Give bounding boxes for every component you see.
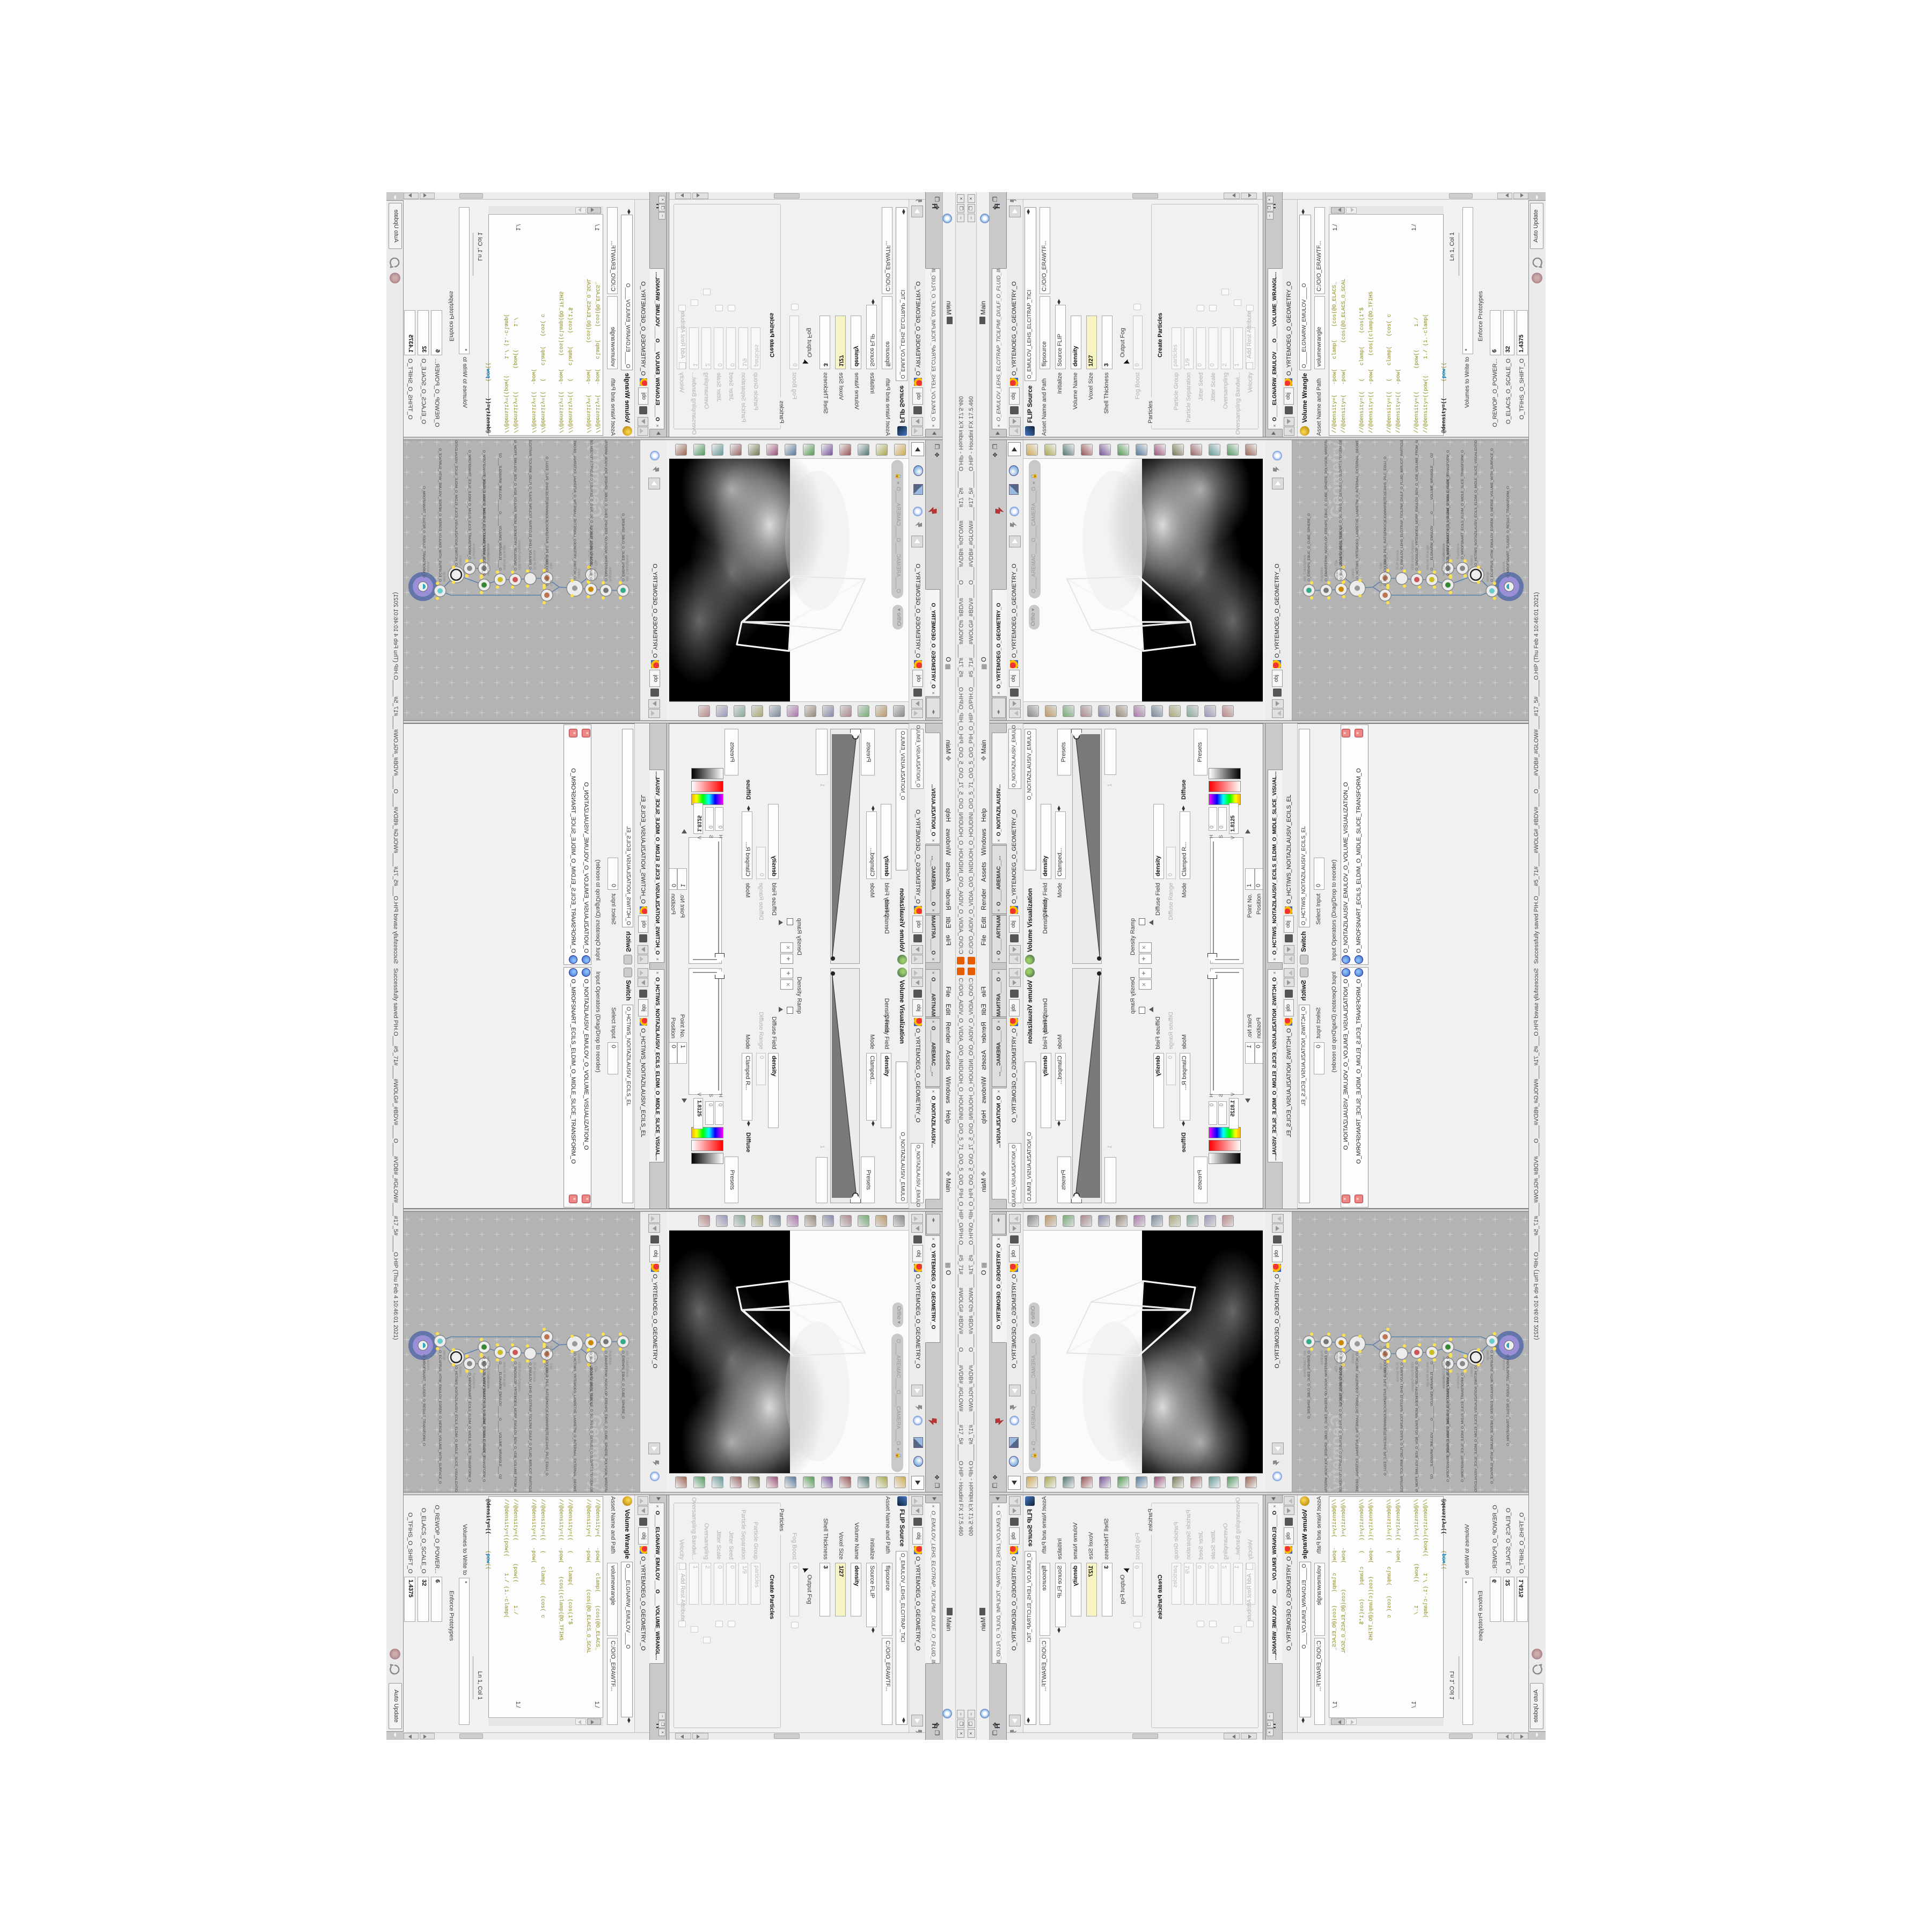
- svg-text:Clip: Clip: [549, 1346, 553, 1352]
- svg-text:O_EREHPS_EBUC_O_CUBE_SPHERE_O: O_EREHPS_EBUC_O_CUBE_SPHERE_O: [1307, 1351, 1311, 1418]
- svg-text:VDB from Polygons: VDB from Polygons: [1411, 1362, 1415, 1392]
- svg-text:O_PILC_O_CLIP_O: O_PILC_O_CLIP_O: [1384, 554, 1387, 586]
- svg-text:O_MROFSNART_TLUSER_O_RESULT_TR: O_MROFSNART_TLUSER_O_RESULT_TRANSFORM_O: [422, 1355, 426, 1446]
- svg-text:O_SNOGILOP_YRTEMOEG_MORF_EMULO: O_SNOGILOP_YRTEMOEG_MORF_EMULOV_BDV_O_VD…: [513, 1362, 517, 1492]
- svg-text:O____ELGNARW_EMULOV______O____: O____ELGNARW_EMULOV______O______VOLUME_W…: [498, 1362, 502, 1479]
- svg-text:Switch: Switch: [1470, 1366, 1474, 1377]
- svg-text:O_EREHPS_EBUC_O_CUBE_SPHERE_O: O_EREHPS_EBUC_O_CUBE_SPHERE_O: [621, 1351, 625, 1418]
- svg-text:Boolean: Boolean: [593, 1352, 597, 1365]
- svg-text:Switch: Switch: [458, 555, 462, 566]
- svg-text:Transform: Transform: [1457, 544, 1460, 559]
- svg-text:Switch: Switch: [1470, 555, 1474, 566]
- svg-text:O_PILC_O_CLIP_O: O_PILC_O_CLIP_O: [545, 554, 548, 586]
- svg-text:JBO.MD3.PETS.TEPCILS_O_5O.JNEG: JBO.MD3.PETS.TEPCILS_O_5O.JNEG_O_GENUS3_…: [1339, 1366, 1343, 1492]
- svg-text:Merge: Merge: [442, 1350, 446, 1360]
- svg-text:O_MROFSNART_ECILS_ELDIM_O_MIDL: O_MROFSNART_ECILS_ELDIM_O_MIDLE_SLICE_TR…: [482, 1373, 486, 1482]
- svg-text:O_HCTIWS_NOITAZILAUSIV_ECILS_E: O_HCTIWS_NOITAZILAUSIV_ECILS_ELDIM_O_MID…: [454, 440, 458, 566]
- svg-text:O_MROFSNART_ECILS_ELDIM_O_MIDL: O_MROFSNART_ECILS_ELDIM_O_MIDLE_SLICE_TR…: [467, 1373, 471, 1482]
- svg-text:VDB from Polygons: VDB from Polygons: [1411, 540, 1415, 570]
- svg-text:O____ELGNARW_EMULOV______O____: O____ELGNARW_EMULOV______O______VOLUME_W…: [1430, 1362, 1434, 1479]
- svg-text:O_EMARFERIW_NOGYLOP_EREHPS_EBU: O_EMARFERIW_NOGYLOP_EREHPS_EBUC_O_CUBE_S…: [1324, 1351, 1328, 1492]
- svg-text:File: File: [1335, 1366, 1338, 1372]
- svg-text:PolyWire: PolyWire: [608, 1351, 612, 1365]
- svg-text:Volume Wrangle: Volume Wrangle: [1426, 545, 1430, 570]
- svg-text:O_EMULOV_LEHS_ELCITRAP_TICILPM: O_EMULOV_LEHS_ELCITRAP_TICILPMI_DIULF_O_…: [528, 440, 532, 569]
- svg-text:Merge: Merge: [1486, 572, 1490, 582]
- svg-text:Clip: Clip: [1379, 1346, 1383, 1352]
- svg-text:O____ELGNARW_EMULOV______O____: O____ELGNARW_EMULOV______O______VOLUME_W…: [498, 453, 502, 570]
- svg-text:Clip: Clip: [549, 562, 553, 569]
- svg-text:O_SNOGILOP_YRTEMOEG_MORF_EMULO: O_SNOGILOP_YRTEMOEG_MORF_EMULOV_BDV_O_VD…: [513, 440, 517, 570]
- svg-text:FLIP Source: FLIP Source: [532, 1363, 536, 1382]
- svg-text:Geometry: Geometry: [1328, 1415, 1345, 1490]
- svg-text:Transform: Transform: [1457, 1373, 1460, 1388]
- svg-text:O_EMARFERIW_NOGYLOP_EREHPS_EBU: O_EMARFERIW_NOGYLOP_EREHPS_EBUC_O_CUBE_S…: [1324, 440, 1328, 581]
- svg-text:Clip: Clip: [1379, 1363, 1383, 1370]
- svg-text:Volume Wrangle: Volume Wrangle: [1426, 1362, 1430, 1387]
- svg-text:O_ECAFRUS_HTIW_EMULOV_EGREM_O_: O_ECAFRUS_HTIW_EMULOV_EGREM_O_MERGE_VOLU…: [1490, 448, 1494, 582]
- svg-text:O_MROFSNART_ECILS_ELDIM_O_MIDL: O_MROFSNART_ECILS_ELDIM_O_MIDLE_SLICE_TR…: [482, 450, 486, 559]
- svg-text:Transform: Transform: [486, 1373, 490, 1388]
- svg-text:PolyWire: PolyWire: [608, 567, 612, 581]
- svg-text:am_CubeSphere: am_CubeSphere: [625, 554, 629, 581]
- svg-text:O_EGUJ_PILC_RATS(PMOC)EJO(MMIR: O_EGUJ_PILC_RATS(PMOC)EJO(MMIRB)TEJ(EJAH…: [1384, 1363, 1387, 1475]
- svg-text:Clip: Clip: [549, 1363, 553, 1370]
- svg-text:File: File: [594, 1366, 597, 1372]
- svg-text:File: File: [594, 560, 597, 566]
- svg-text:Transform: Transform: [426, 1355, 430, 1370]
- svg-text:O_EMARFERIW_NOGYLOP_EREHPS_EBU: O_EMARFERIW_NOGYLOP_EREHPS_EBUC_O_CUBE_S…: [604, 1351, 608, 1492]
- svg-text:Switch: Switch: [1351, 568, 1355, 579]
- svg-text:O____ELGNARW_EMULOV______O____: O____ELGNARW_EMULOV______O______VOLUME_W…: [1430, 453, 1434, 570]
- svg-text:Geometry: Geometry: [1328, 442, 1345, 517]
- svg-text:O_MROFSNART_ECILS_ELDIM_O_MIDL: O_MROFSNART_ECILS_ELDIM_O_MIDLE_SLICE_TR…: [467, 450, 471, 559]
- svg-text:VDB from Polygons: VDB from Polygons: [517, 540, 521, 570]
- svg-text:O_MROFSNART_TLUSER_O_RESULT_TR: O_MROFSNART_TLUSER_O_RESULT_TRANSFORM_O: [1506, 1355, 1510, 1446]
- svg-text:PolyWire: PolyWire: [1320, 1351, 1324, 1365]
- svg-text:File: File: [1335, 560, 1338, 566]
- svg-text:O_EGUJ_PILC_RATS(PMOC)EJO(MMIR: O_EGUJ_PILC_RATS(PMOC)EJO(MMIRB)TEJ(EJAH…: [545, 1363, 548, 1475]
- svg-text:O_EMULOV_LEHS_ELCITRAP_TICILPM: O_EMULOV_LEHS_ELCITRAP_TICILPMI_DIULF_O_…: [1400, 440, 1404, 569]
- svg-text:Transform: Transform: [486, 544, 490, 559]
- svg-text:JBO.MD3.PETS.TEPCILS_O_5O.JNEG: JBO.MD3.PETS.TEPCILS_O_5O.JNEG_O_GENUS3_…: [589, 440, 593, 566]
- svg-text:Transform: Transform: [472, 1373, 475, 1388]
- svg-text:Switch: Switch: [577, 1353, 581, 1364]
- svg-text:JBO.MD3.PETS.TEPCILS_O_5O.JNEG: JBO.MD3.PETS.TEPCILS_O_5O.JNEG_O_GENUS3_…: [1339, 440, 1343, 566]
- svg-text:O_HCTIWS_YRTEMOEG_LANRETXE_LAN: O_HCTIWS_YRTEMOEG_LANRETXE_LANRETNI_O_IN…: [573, 1353, 576, 1492]
- svg-text:O_SNOGILOP_YRTEMOEG_MORF_EMULO: O_SNOGILOP_YRTEMOEG_MORF_EMULOV_BDV_O_VD…: [1415, 440, 1419, 570]
- svg-text:O_EREHPS_EBUC_O_CUBE_SPHERE_O: O_EREHPS_EBUC_O_CUBE_SPHERE_O: [621, 514, 625, 581]
- svg-text:O_HCTIWS_NOITAZILAUSIV_ECILS_E: O_HCTIWS_NOITAZILAUSIV_ECILS_ELDIM_O_MID…: [1474, 1366, 1478, 1492]
- svg-text:O_EGUJ_PILC_RATS(PMOC)EJO(MMIR: O_EGUJ_PILC_RATS(PMOC)EJO(MMIRB)TEJ(EJAH…: [545, 457, 548, 569]
- svg-text:Switch: Switch: [1351, 1353, 1355, 1364]
- svg-text:O_MROFSNART_TLUSER_O_RESULT_TR: O_MROFSNART_TLUSER_O_RESULT_TRANSFORM_O: [1506, 486, 1510, 577]
- svg-text:JBO.MD3.PETS.TEPCILS_O_5O.JNEG: JBO.MD3.PETS.TEPCILS_O_5O.JNEG_O_GENUS3_…: [589, 1366, 593, 1492]
- svg-text:am_CubeSphere: am_CubeSphere: [1303, 554, 1307, 581]
- svg-text:Transform: Transform: [472, 544, 475, 559]
- svg-text:Volume Wrangle: Volume Wrangle: [502, 1362, 506, 1387]
- svg-text:PolyWire: PolyWire: [1320, 567, 1324, 581]
- svg-text:O_ECAFRUS_HTIW_EMULOV_EGREM_O_: O_ECAFRUS_HTIW_EMULOV_EGREM_O_MERGE_VOLU…: [1490, 1350, 1494, 1484]
- svg-text:O_HCTIWS_YRTEMOEG_LANRETXE_LAN: O_HCTIWS_YRTEMOEG_LANRETXE_LANRETNI_O_IN…: [1356, 1353, 1359, 1492]
- svg-text:O_MROFSNART_ECILS_ELDIM_O_MIDL: O_MROFSNART_ECILS_ELDIM_O_MIDLE_SLICE_TR…: [1446, 1373, 1450, 1482]
- svg-text:am_CubeSphere: am_CubeSphere: [1303, 1351, 1307, 1378]
- svg-text:O_HCTIWS_NOITAZILAUSIV_ECILS_E: O_HCTIWS_NOITAZILAUSIV_ECILS_ELDIM_O_MID…: [454, 1366, 458, 1492]
- svg-text:O_HCTIWS_NOITAZILAUSIV_ECILS_E: O_HCTIWS_NOITAZILAUSIV_ECILS_ELDIM_O_MID…: [1474, 440, 1478, 566]
- svg-text:VDB from Polygons: VDB from Polygons: [517, 1362, 521, 1392]
- svg-text:am_CubeSphere: am_CubeSphere: [625, 1351, 629, 1378]
- svg-text:Boolean: Boolean: [1335, 567, 1339, 580]
- svg-text:Merge: Merge: [442, 572, 446, 582]
- svg-text:Transform: Transform: [1502, 1355, 1506, 1370]
- svg-text:FLIP Source: FLIP Source: [1396, 1363, 1400, 1382]
- svg-text:Transform: Transform: [1442, 544, 1446, 559]
- svg-text:O_EMARFERIW_NOGYLOP_EREHPS_EBU: O_EMARFERIW_NOGYLOP_EREHPS_EBUC_O_CUBE_S…: [604, 440, 608, 581]
- svg-text:Clip: Clip: [1379, 580, 1383, 586]
- svg-text:Switch: Switch: [458, 1366, 462, 1377]
- svg-text:O_MROFSNART_ECILS_ELDIM_O_MIDL: O_MROFSNART_ECILS_ELDIM_O_MIDLE_SLICE_TR…: [1461, 1373, 1465, 1482]
- svg-text:O_PILC_O_CLIP_O: O_PILC_O_CLIP_O: [545, 1346, 548, 1378]
- svg-text:Transform: Transform: [1502, 562, 1506, 577]
- svg-text:Boolean: Boolean: [1335, 1352, 1339, 1365]
- svg-text:O_ECAFRUS_HTIW_EMULOV_EGREM_O_: O_ECAFRUS_HTIW_EMULOV_EGREM_O_MERGE_VOLU…: [438, 1350, 442, 1484]
- svg-text:O_EGUJ_PILC_RATS(PMOC)EJO(MMIR: O_EGUJ_PILC_RATS(PMOC)EJO(MMIRB)TEJ(EJAH…: [1384, 457, 1387, 569]
- svg-text:Switch: Switch: [577, 568, 581, 579]
- svg-text:Transform: Transform: [1442, 1373, 1446, 1388]
- svg-text:Clip: Clip: [1379, 562, 1383, 569]
- svg-text:Volume Wrangle: Volume Wrangle: [502, 545, 506, 570]
- svg-text:O_EMULOV_LEHS_ELCITRAP_TICILPM: O_EMULOV_LEHS_ELCITRAP_TICILPMI_DIULF_O_…: [528, 1363, 532, 1492]
- svg-text:FLIP Source: FLIP Source: [532, 550, 536, 569]
- svg-text:Clip: Clip: [549, 580, 553, 586]
- svg-text:O_PILC_O_CLIP_O: O_PILC_O_CLIP_O: [1384, 1346, 1387, 1378]
- svg-text:Boolean: Boolean: [593, 567, 597, 580]
- svg-text:Merge: Merge: [1486, 1350, 1490, 1360]
- svg-text:O_MROFSNART_TLUSER_O_RESULT_TR: O_MROFSNART_TLUSER_O_RESULT_TRANSFORM_O: [422, 486, 426, 577]
- svg-text:O_MROFSNART_ECILS_ELDIM_O_MIDL: O_MROFSNART_ECILS_ELDIM_O_MIDLE_SLICE_TR…: [1461, 450, 1465, 559]
- svg-text:Transform: Transform: [426, 562, 430, 577]
- svg-text:O_MROFSNART_ECILS_ELDIM_O_MIDL: O_MROFSNART_ECILS_ELDIM_O_MIDLE_SLICE_TR…: [1446, 450, 1450, 559]
- svg-text:O_HCTIWS_YRTEMOEG_LANRETXE_LAN: O_HCTIWS_YRTEMOEG_LANRETXE_LANRETNI_O_IN…: [573, 440, 576, 579]
- svg-text:O_ECAFRUS_HTIW_EMULOV_EGREM_O_: O_ECAFRUS_HTIW_EMULOV_EGREM_O_MERGE_VOLU…: [438, 448, 442, 582]
- svg-text:FLIP Source: FLIP Source: [1396, 550, 1400, 569]
- svg-text:O_EMULOV_LEHS_ELCITRAP_TICILPM: O_EMULOV_LEHS_ELCITRAP_TICILPMI_DIULF_O_…: [1400, 1363, 1404, 1492]
- svg-text:O_HCTIWS_YRTEMOEG_LANRETXE_LAN: O_HCTIWS_YRTEMOEG_LANRETXE_LANRETNI_O_IN…: [1356, 440, 1359, 579]
- svg-text:O_SNOGILOP_YRTEMOEG_MORF_EMULO: O_SNOGILOP_YRTEMOEG_MORF_EMULOV_BDV_O_VD…: [1415, 1362, 1419, 1492]
- svg-text:O_EREHPS_EBUC_O_CUBE_SPHERE_O: O_EREHPS_EBUC_O_CUBE_SPHERE_O: [1307, 514, 1311, 581]
